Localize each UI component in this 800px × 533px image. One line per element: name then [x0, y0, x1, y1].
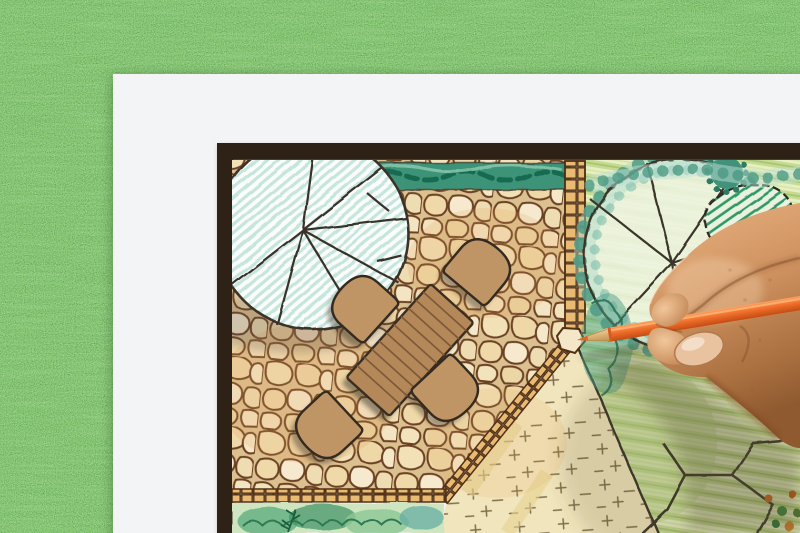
photo-stage: Garden landscape architecture plan, top … [0, 0, 800, 533]
bottom-planting-bed [232, 503, 444, 533]
garden-plan-photo: Garden landscape architecture plan, top … [0, 0, 800, 533]
